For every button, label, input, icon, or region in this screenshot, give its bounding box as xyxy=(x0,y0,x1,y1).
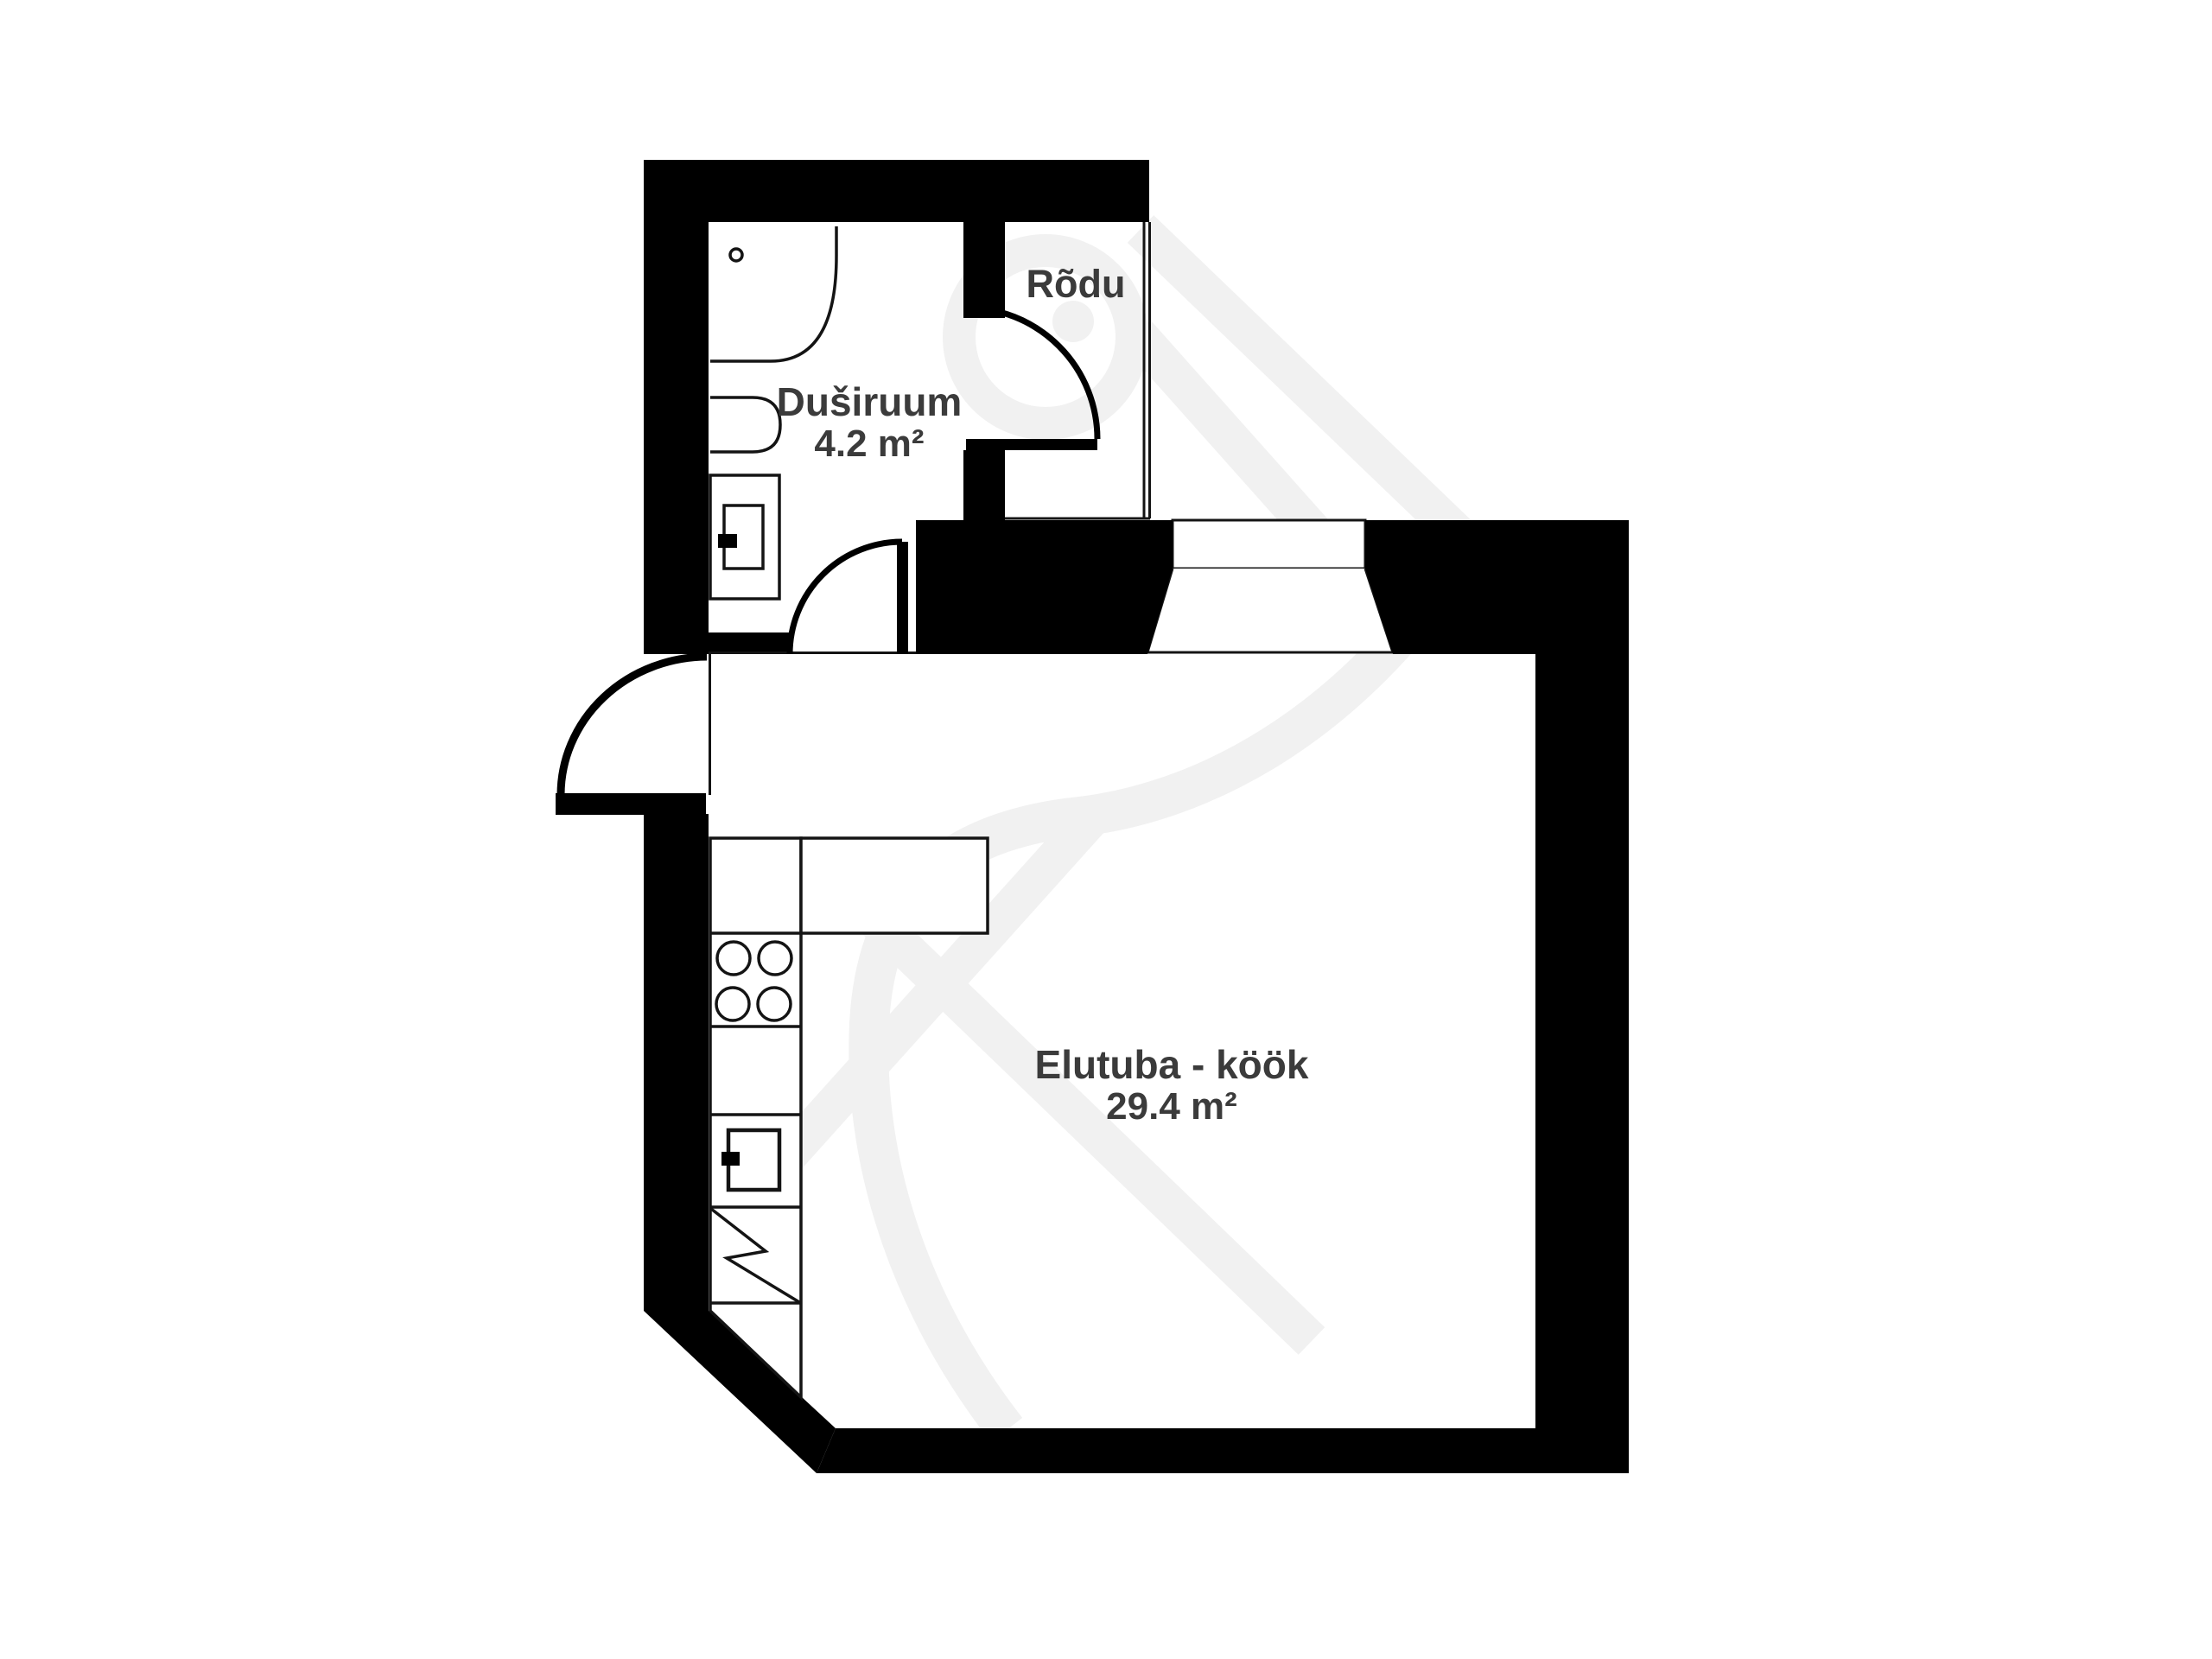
shower-drain xyxy=(730,249,742,261)
label-dushiruum-name: Duširuum xyxy=(777,379,963,424)
bathtub xyxy=(710,397,780,452)
window-reveal xyxy=(1147,569,1393,652)
shower-door-arc xyxy=(790,542,902,654)
wall-strip-above-balcony-door xyxy=(963,220,1005,318)
kitchen-counter-top xyxy=(801,838,988,933)
label-rodu-name: Rõdu xyxy=(1027,262,1126,306)
wall-main-top-left-segment xyxy=(916,520,1173,654)
watermark-leg-right xyxy=(873,918,1312,1341)
wall-shower-bottom xyxy=(709,632,791,654)
watermark-eye-dot xyxy=(1052,301,1094,342)
label-elutuba-name: Elutuba - köök xyxy=(1035,1042,1309,1087)
floor-plan-page: Duširuum 4.2 m² Rõdu Elutuba - köök 29.4… xyxy=(0,0,2212,1659)
label-dushiruum-area: 4.2 m² xyxy=(814,423,924,465)
wall-top-band xyxy=(644,160,1149,222)
label-elutuba-area: 29.4 m² xyxy=(1106,1085,1237,1128)
entrance-door-leaf xyxy=(556,793,706,815)
kitchen-sink-tap xyxy=(721,1152,740,1166)
balcony-door-leaf xyxy=(966,439,1097,450)
shower-corner xyxy=(710,226,836,361)
entrance-door-arc xyxy=(561,657,707,795)
entrance-door xyxy=(556,657,707,815)
shower-door-leaf xyxy=(897,542,908,654)
wall-left-upper xyxy=(644,160,709,654)
window-glass xyxy=(1173,520,1365,569)
wall-left-lower xyxy=(644,814,709,1311)
shower-door xyxy=(790,542,908,654)
kitchen-counter-strip xyxy=(710,838,801,1397)
washing-machine xyxy=(710,475,779,599)
floor-plan-canvas: Duširuum 4.2 m² Rõdu Elutuba - köök 29.4… xyxy=(0,0,2212,1659)
wall-strip-below-balcony-door xyxy=(963,450,1005,520)
wall-right xyxy=(1535,520,1629,1473)
window xyxy=(1147,520,1393,652)
wall-bottom xyxy=(817,1428,1629,1473)
washing-machine-valve xyxy=(718,534,737,548)
